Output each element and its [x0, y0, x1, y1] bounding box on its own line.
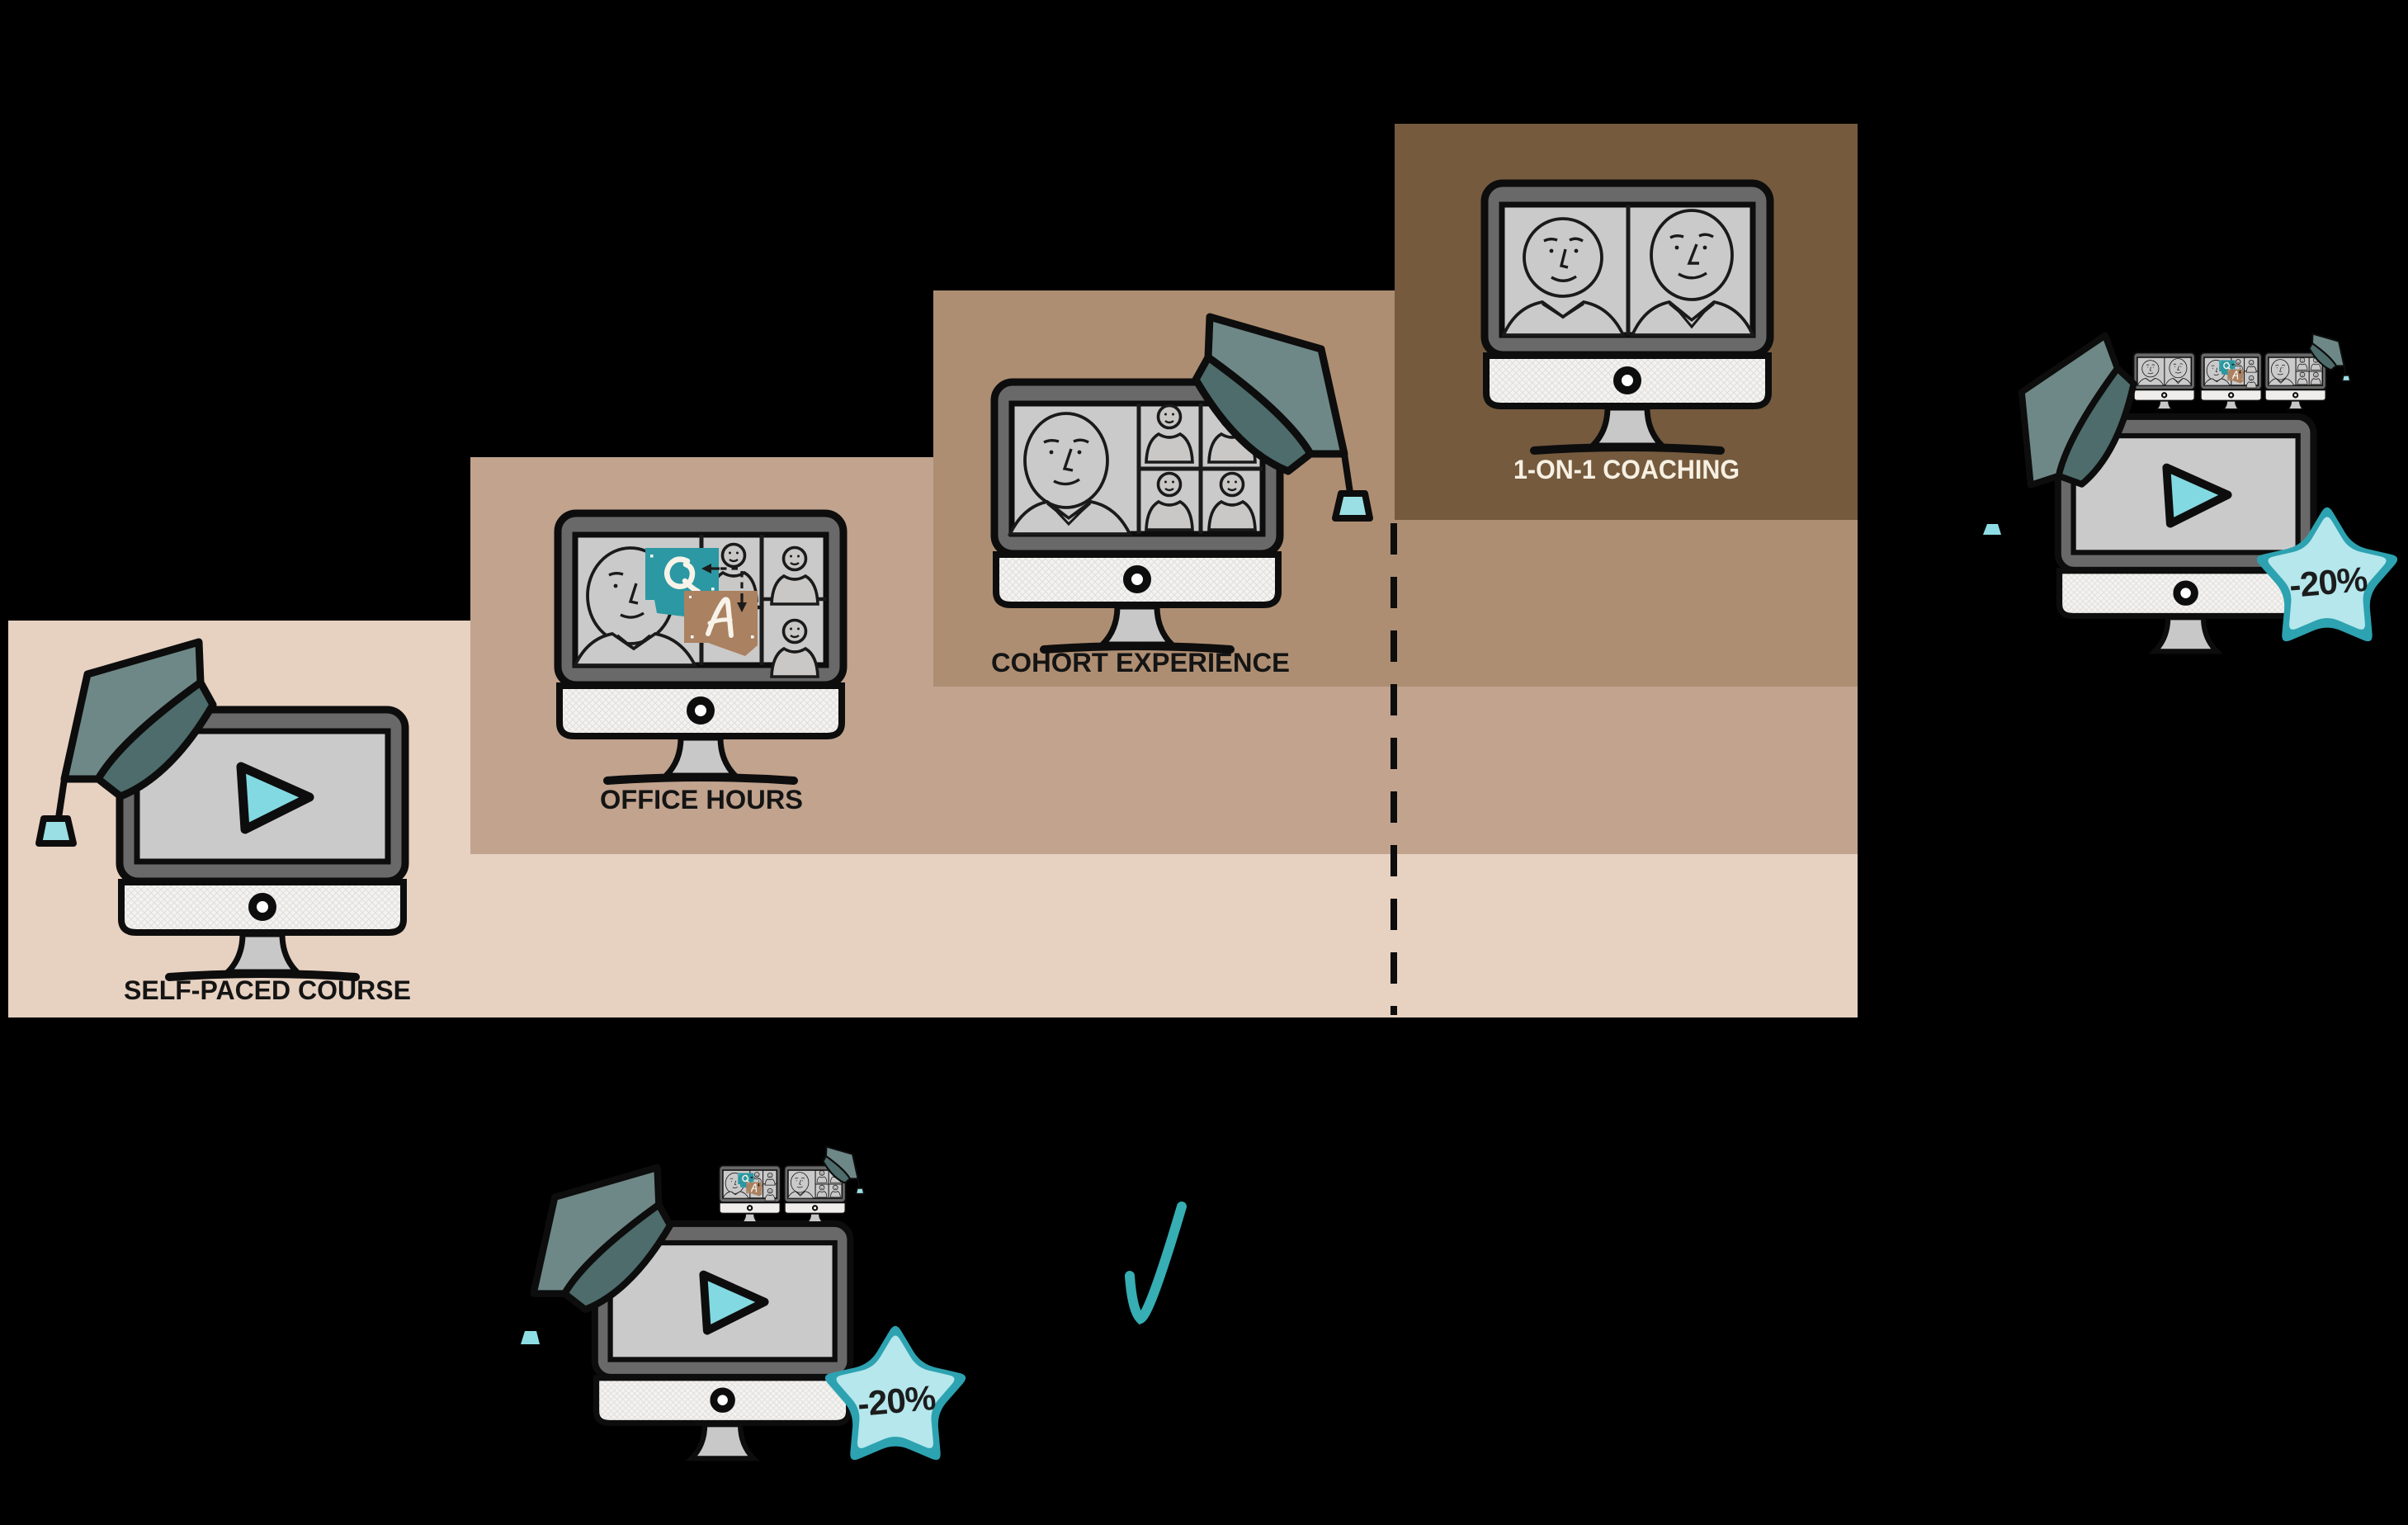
svg-text:1-ON-1 COACHING: 1-ON-1 COACHING — [1513, 455, 1740, 484]
svg-text:COHORT EXPERIENCE: COHORT EXPERIENCE — [991, 648, 1290, 678]
svg-text:OFFICE HOURS: OFFICE HOURS — [600, 785, 803, 814]
svg-text:SELF-PACED COURSE: SELF-PACED COURSE — [124, 975, 411, 1005]
